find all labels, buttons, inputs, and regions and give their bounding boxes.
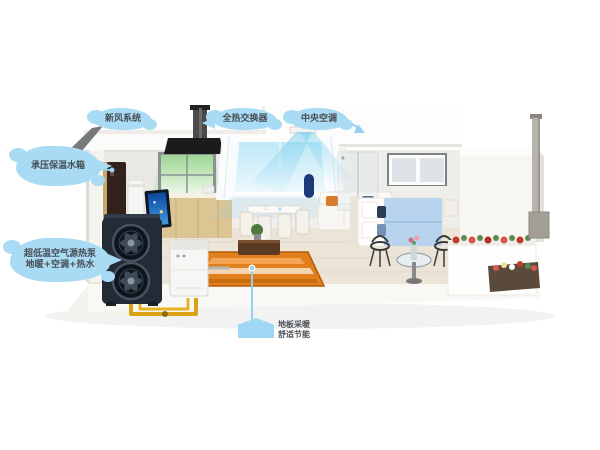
callout-tail-right [98, 160, 112, 172]
callout-tail-left [202, 117, 215, 129]
callout-tail-right [108, 254, 122, 266]
floor-heating-line2: 舒适节能 [278, 330, 310, 340]
callout-hot-water-label: 承压保温水箱 [31, 161, 85, 172]
callout-fresh-air: 新风系统 [94, 108, 152, 130]
callout-central-ac: 中央空调 [290, 108, 348, 130]
callout-heat-pump-line1: 超低温空气源热泵 [24, 249, 96, 260]
callout-central-ac-label: 中央空调 [301, 114, 337, 125]
callout-heat-recovery: 全热交换器 [213, 108, 277, 130]
hydro-module-unit [170, 240, 208, 296]
bed [350, 196, 458, 246]
floor-heating-line1: 地板采暖 [278, 320, 310, 330]
house-illustration [0, 0, 600, 450]
callout-heat-pump-line2: 地暖+空调+热水 [25, 260, 94, 271]
corner-pole [529, 114, 549, 238]
callout-fresh-air-label: 新风系统 [105, 114, 141, 125]
front-flower-bed [488, 261, 540, 292]
bedroom-window [386, 154, 448, 190]
callout-heat-recovery-label: 全热交换器 [222, 114, 267, 125]
scene: 新风系统 全热交换器 中央空调 承压保温水箱 超低温空气源热泵 地暖+空调+热水… [0, 0, 600, 450]
fan-bottom [113, 263, 149, 299]
floor-heating-dot [249, 265, 255, 271]
callout-hot-water-tank: 承压保温水箱 [16, 146, 100, 186]
floor-heating-text: 地板采暖 舒适节能 [278, 320, 310, 340]
callout-heat-pump: 超低温空气源热泵 地暖+空调+热水 [10, 238, 110, 282]
